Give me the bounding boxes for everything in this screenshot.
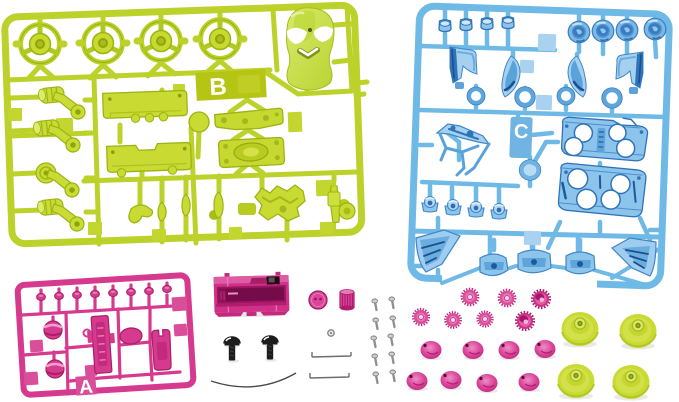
svg-text:B: B <box>209 73 228 101</box>
svg-text:C: C <box>514 121 529 143</box>
svg-text:A: A <box>79 377 94 399</box>
